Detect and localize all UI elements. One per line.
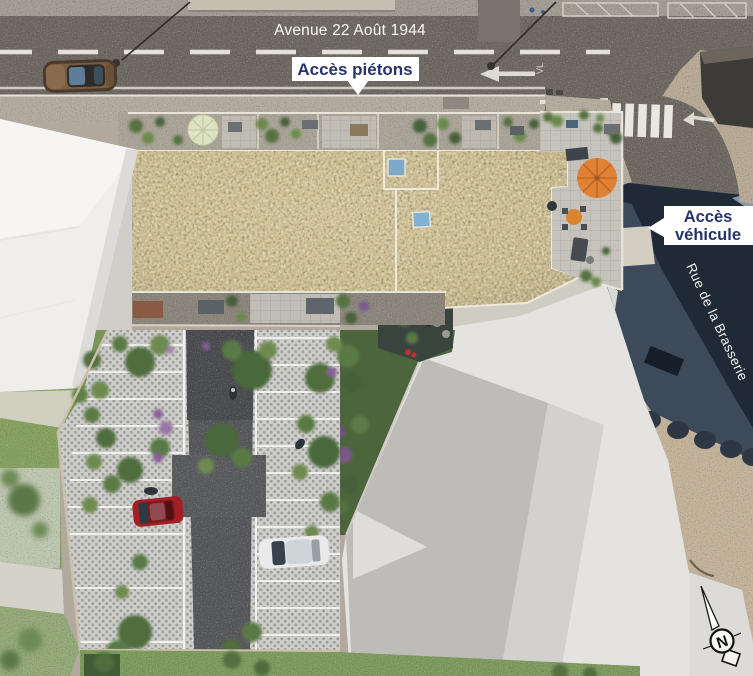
svg-text:Accès piétons: Accès piétons xyxy=(297,60,412,79)
svg-text:Accès: Accès xyxy=(684,208,733,226)
svg-text:Avenue 22 Août 1944: Avenue 22 Août 1944 xyxy=(274,22,426,39)
svg-text:VL: VL xyxy=(535,63,545,74)
svg-text:véhicule: véhicule xyxy=(675,226,741,244)
